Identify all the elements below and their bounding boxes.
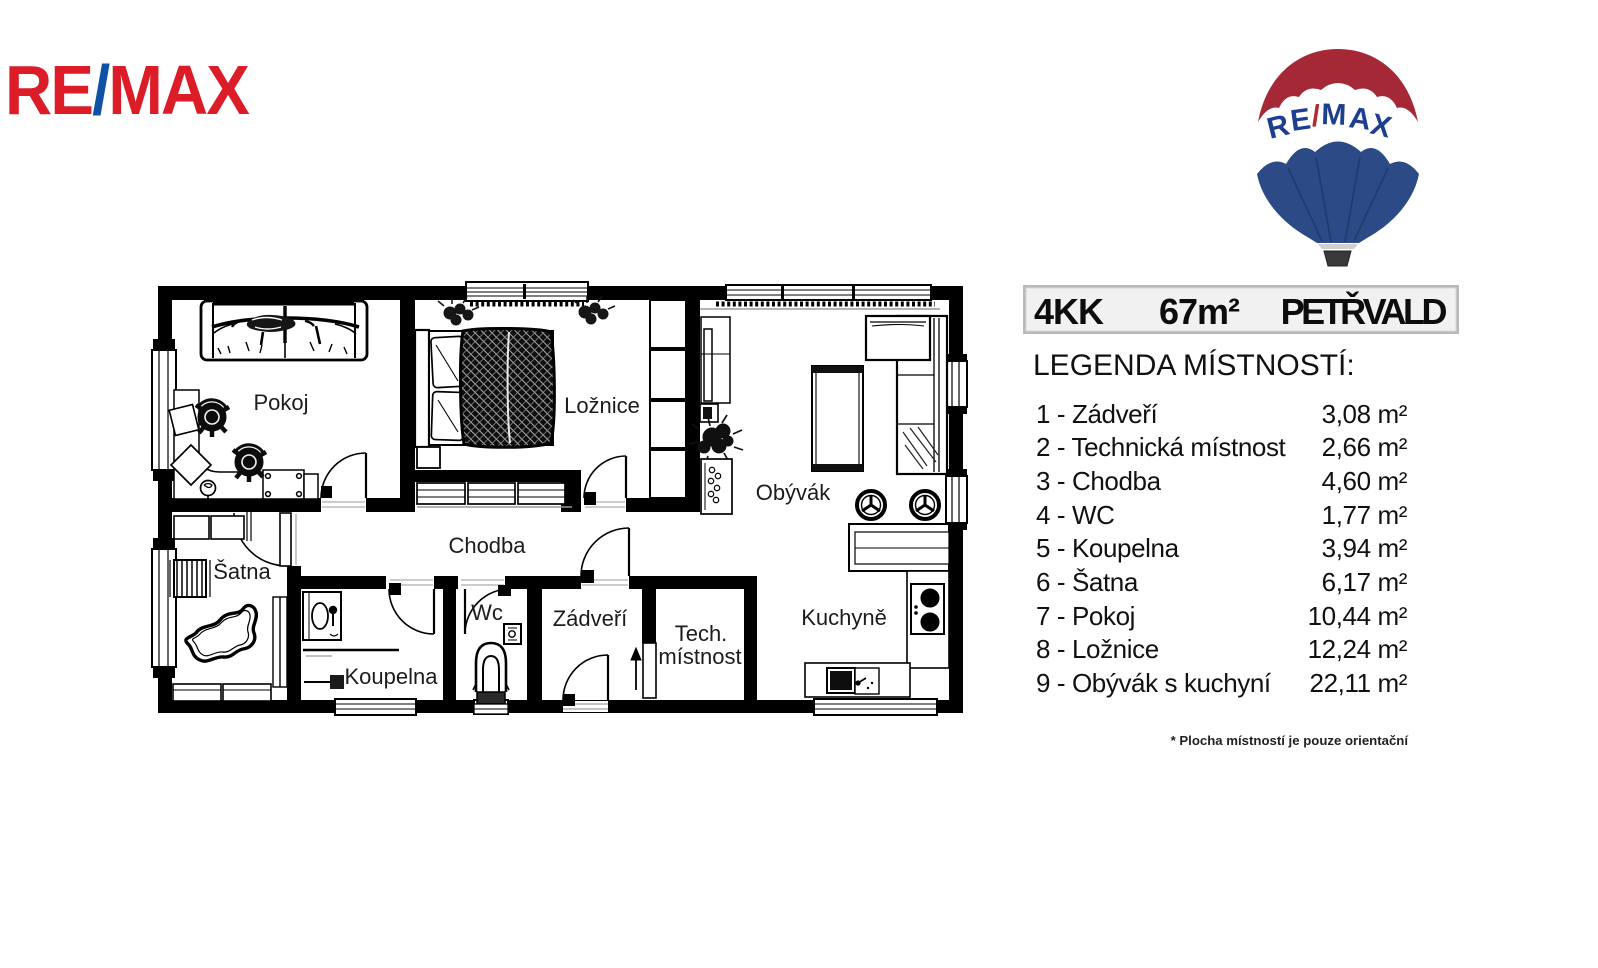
svg-text:6 - Šatna: 6 - Šatna (1036, 567, 1139, 597)
svg-text:8 - Ložnice: 8 - Ložnice (1036, 634, 1159, 664)
svg-text:M: M (1321, 98, 1347, 132)
svg-text:3,08 m²: 3,08 m² (1322, 399, 1408, 429)
svg-text:1,77 m²: 1,77 m² (1322, 500, 1408, 530)
svg-text:67m²: 67m² (1159, 291, 1240, 332)
svg-text:Ložnice: Ložnice (564, 393, 640, 418)
svg-text:4 - WC: 4 - WC (1036, 500, 1114, 530)
svg-text:Koupelna: Koupelna (345, 664, 439, 689)
svg-text:7 - Pokoj: 7 - Pokoj (1036, 601, 1135, 631)
svg-text:Kuchyně: Kuchyně (801, 605, 887, 630)
svg-text:Pokoj: Pokoj (253, 390, 308, 415)
svg-text:2,66 m²: 2,66 m² (1322, 432, 1408, 462)
svg-text:Tech.: Tech. (675, 621, 728, 646)
svg-text:12,24 m²: 12,24 m² (1308, 634, 1408, 664)
svg-text:22,11 m²: 22,11 m² (1310, 668, 1408, 698)
svg-text:3,94 m²: 3,94 m² (1322, 533, 1408, 563)
svg-text:4KK: 4KK (1034, 291, 1104, 332)
svg-text:RE/MAX: RE/MAX (5, 51, 250, 129)
svg-text:Zádveří: Zádveří (553, 606, 628, 631)
svg-text:LEGENDA MÍSTNOSTÍ:: LEGENDA MÍSTNOSTÍ: (1033, 349, 1355, 382)
svg-text:Obývák: Obývák (756, 480, 832, 505)
svg-text:místnost: místnost (658, 644, 741, 669)
svg-text:Wc: Wc (471, 600, 503, 625)
svg-text:5 - Koupelna: 5 - Koupelna (1036, 533, 1180, 563)
svg-text:* Plocha místností je pouze o: * Plocha místností je pouze orientační (1171, 733, 1410, 748)
svg-text:PETŘVALD: PETŘVALD (1281, 290, 1447, 332)
svg-text:1 - Zádveří: 1 - Zádveří (1036, 399, 1158, 429)
svg-text:Chodba: Chodba (448, 533, 526, 558)
svg-text:2 - Technická místnost: 2 - Technická místnost (1036, 432, 1287, 462)
svg-text:10,44 m²: 10,44 m² (1308, 601, 1408, 631)
svg-text:Šatna: Šatna (213, 559, 271, 584)
svg-text:9 - Obývák s kuchyní: 9 - Obývák s kuchyní (1036, 668, 1272, 698)
svg-text:6,17 m²: 6,17 m² (1322, 567, 1408, 597)
svg-text:3 - Chodba: 3 - Chodba (1036, 466, 1162, 496)
svg-text:4,60 m²: 4,60 m² (1322, 466, 1408, 496)
